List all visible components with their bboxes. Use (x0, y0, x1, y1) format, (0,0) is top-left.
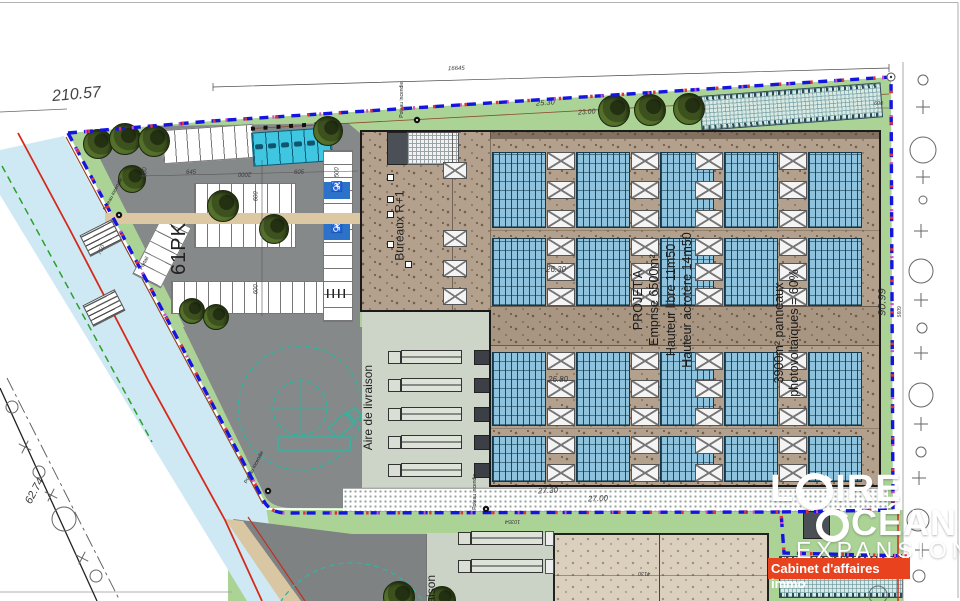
survey-cross (16, 438, 35, 457)
survey-circle (33, 466, 45, 478)
survey-cross (916, 100, 930, 114)
survey-circle (90, 570, 102, 582)
parking-dim-lines (140, 160, 358, 316)
survey-circle (918, 75, 928, 85)
survey-circle (6, 401, 18, 413)
hydrant-icons (116, 117, 489, 512)
survey-cross (916, 170, 930, 184)
logo-letter: L (770, 468, 794, 511)
survey-cross (914, 224, 928, 238)
boundary-corner-marker (887, 73, 895, 81)
site-plan: ♿ ♿ 61PK Bureaux R+1 Aire de livraison A… (0, 0, 960, 601)
road-dashdot-line (7, 378, 120, 601)
survey-circle (917, 323, 927, 333)
survey-circle (910, 137, 936, 163)
survey-circle (919, 196, 927, 204)
survey-circle (909, 259, 933, 283)
survey-cross (914, 346, 928, 360)
survey-circle (909, 383, 933, 407)
survey-circle (916, 447, 926, 457)
company-logo: LIRE CÉAN EXPANSION Cabinet d'affaires i… (768, 462, 960, 587)
logo-banner-text: Cabinet d'affaires immo (768, 558, 910, 591)
road-centerline (0, 388, 97, 601)
survey-cross (42, 486, 61, 505)
logo-banner: Cabinet d'affaires immo (768, 558, 910, 579)
survey-cross (914, 417, 928, 431)
dim-line-top (213, 64, 889, 91)
survey-cross (914, 293, 928, 307)
survey-cross (73, 549, 92, 568)
building-outline (361, 131, 880, 486)
dim-line-front (0, 109, 67, 112)
